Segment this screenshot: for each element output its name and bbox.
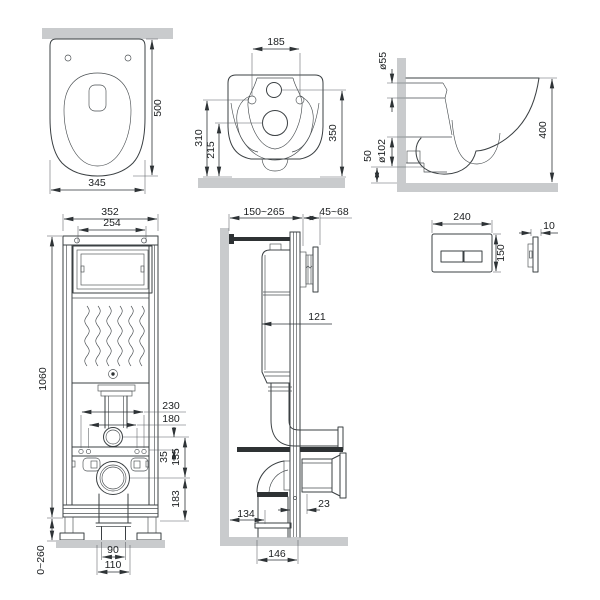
dim-frame-height-1060: 1060 (37, 367, 49, 391)
dim-inlet-dia-55: ø55 (377, 52, 389, 70)
stud-hole (142, 449, 146, 453)
cistern-recess (248, 78, 302, 149)
bracket-slot (83, 458, 100, 471)
brand-logo-mark (111, 372, 114, 375)
bolt (75, 238, 80, 243)
wall-strip (220, 228, 229, 537)
cistern-texture (85, 306, 145, 366)
pan-rear-view: 185 310 215 350 (193, 36, 346, 188)
dim-gap-23: 23 (318, 498, 330, 510)
top-crossbar (63, 236, 158, 245)
dim-plate-width-240: 240 (453, 211, 471, 223)
dim-outlet-dia-102: ø102 (376, 139, 388, 163)
adjustable-leg (65, 517, 73, 533)
flush-slot (89, 85, 106, 111)
frame-front-view: 352 254 1060 0~260 230 180 35 135 183 (35, 206, 190, 575)
bracket-slot (131, 458, 148, 471)
wall-anchor-rod (229, 237, 290, 241)
floor-strip (397, 183, 558, 192)
bottom-crossbar (63, 505, 158, 517)
toilet-body (228, 75, 323, 159)
seat-hinge-hole (125, 55, 131, 61)
mounting-hole (248, 96, 256, 104)
dim-bar-offset-35: 35 (158, 451, 170, 463)
dim-bolt-span-230: 230 (162, 400, 180, 412)
dim-plate-height-150: 150 (495, 244, 507, 262)
dim-outlet-offset-50: 50 (362, 150, 374, 162)
dim-plate-depth-45-68: 45~68 (319, 206, 349, 218)
wall-strip (198, 178, 345, 188)
pan-top-view: 500 345 (42, 28, 173, 194)
dim-outlet-base-183: 183 (170, 490, 182, 508)
drain-collar (255, 523, 291, 528)
dim-bolt-spacing-185: 185 (267, 36, 285, 48)
dim-drain-span-146: 146 (268, 548, 286, 560)
dim-tank-depth-121: 121 (308, 311, 326, 323)
outlet-connector (302, 459, 332, 492)
frame-side-view: 121 150~265 (220, 206, 352, 564)
flush-pipe-joint (98, 385, 135, 391)
mounting-hole (296, 96, 304, 104)
wall-strip (397, 58, 406, 185)
flush-plate-edge (313, 247, 318, 292)
foot-plate (137, 533, 161, 540)
dim-inlet-outlet-135: 135 (170, 448, 182, 466)
flush-actuator-back (300, 252, 306, 287)
bowl-cavity (452, 120, 500, 164)
flush-plate-view: 240 150 10 (432, 211, 558, 272)
dim-bolt-span-180: 180 (162, 413, 180, 425)
technical-drawing: 500 345 185 310 215 350 (0, 0, 600, 600)
dim-depth-range-150-265: 150~265 (243, 206, 284, 218)
pan-side-view: ø55 ø102 50 400 (362, 52, 558, 192)
inlet-stub (270, 244, 281, 250)
dim-depth-400: 400 (537, 121, 549, 139)
floor-strip (220, 537, 348, 546)
stud-hole (86, 449, 90, 453)
seat-rim (64, 73, 131, 166)
dim-inlet-height-350: 350 (327, 124, 339, 142)
drain-elbow (257, 461, 284, 492)
water-inlet (267, 83, 282, 98)
mounting-crossbar (72, 447, 149, 456)
adjustable-leg (148, 517, 156, 533)
wall-strip (42, 28, 173, 39)
outlet-flange (97, 462, 130, 495)
flush-button-large (441, 251, 463, 262)
access-panel (73, 246, 152, 293)
flush-bend-flange (338, 427, 343, 450)
dim-bolt-height-310: 310 (193, 129, 205, 147)
bowl-curve (231, 103, 319, 160)
crossbar-side (237, 447, 290, 452)
dim-depth-500: 500 (152, 99, 164, 117)
dim-collar-width-110: 110 (105, 559, 122, 571)
dim-drain-offset-134: 134 (237, 508, 255, 520)
flush-elbow (104, 428, 123, 447)
dim-drain-width-90: 90 (107, 544, 119, 556)
drain-joint (257, 492, 288, 497)
foot-plate (60, 533, 84, 540)
waste-outlet (263, 111, 288, 136)
dim-panel-width-254: 254 (103, 217, 121, 229)
toilet-profile (406, 78, 539, 174)
dim-plate-thickness-10: 10 (543, 220, 555, 232)
seat-hinge-hole (65, 55, 71, 61)
flush-button-small (464, 251, 482, 262)
stud-hole (79, 449, 83, 453)
dim-outlet-height-215: 215 (205, 141, 217, 159)
outlet-bump (262, 159, 288, 171)
flush-actuator-body (306, 255, 313, 284)
flush-plate-side (533, 237, 538, 272)
cistern-profile (262, 250, 290, 383)
stud-hole (135, 449, 139, 453)
dim-leg-range-0-260: 0~260 (35, 545, 47, 575)
dim-width-345: 345 (88, 177, 106, 189)
